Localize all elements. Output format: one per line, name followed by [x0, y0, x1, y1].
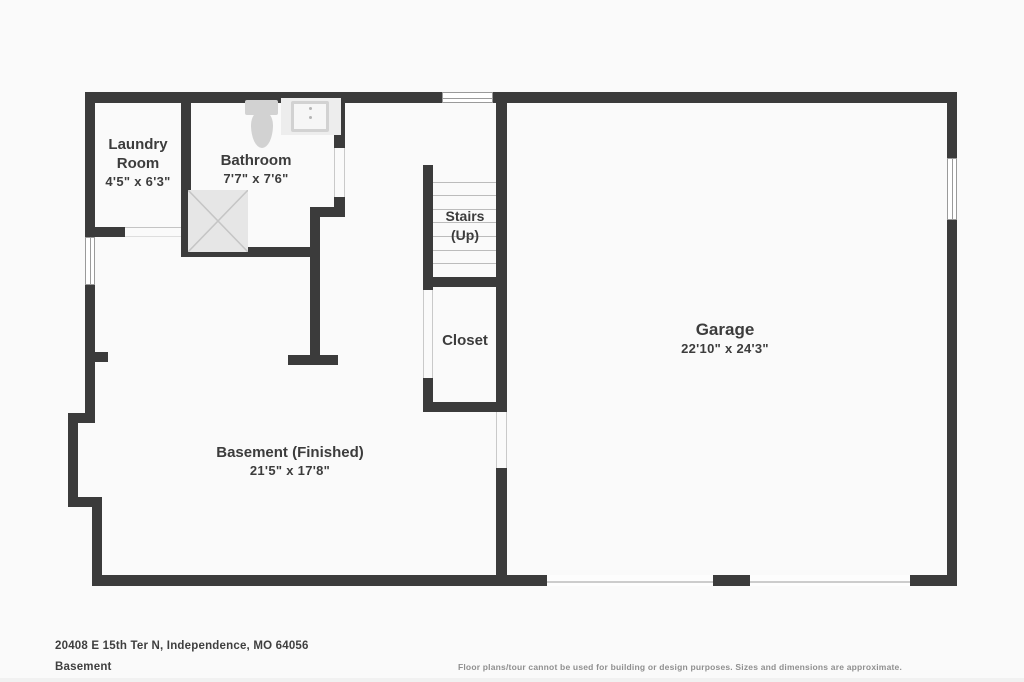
- stairs-direction: (Up): [423, 226, 507, 245]
- room-dims: 4'5" x 6'3": [95, 173, 181, 191]
- wall-partition-endcap: [288, 355, 338, 365]
- wall-closet-left-top: [423, 277, 433, 290]
- room-name: Garage: [640, 319, 810, 340]
- floor-level-label: Basement: [55, 661, 112, 673]
- laundry-door-opening: [125, 227, 181, 237]
- room-name: Basement (Finished): [190, 443, 390, 462]
- stair-tread-line: [433, 195, 496, 196]
- room-basement: Basement (Finished) 21'5" x 17'8": [190, 443, 390, 480]
- wall-basement-partition: [310, 207, 320, 365]
- window-left-symbol: [85, 237, 95, 285]
- window-mullion: [90, 238, 91, 284]
- room-dims: 22'10" x 24'3": [640, 340, 810, 358]
- garage-vehicle-door-1: [547, 575, 713, 586]
- stair-tread-line: [433, 263, 496, 264]
- room-name: Closet: [423, 331, 507, 350]
- sink-faucet-dot: [309, 107, 312, 110]
- garage-door-panel-line: [547, 581, 713, 583]
- wall-closet-bottom: [423, 402, 507, 412]
- room-name: Laundry Room: [95, 135, 181, 173]
- room-dims: 7'7" x 7'6": [196, 170, 316, 188]
- room-dims: 21'5" x 17'8": [190, 462, 390, 480]
- room-name: Stairs: [423, 207, 507, 226]
- room-bathroom: Bathroom 7'7" x 7'6": [196, 151, 316, 188]
- window-top-symbol: [442, 92, 493, 103]
- wall-lower-left: [92, 497, 102, 586]
- room-name: Bathroom: [196, 151, 316, 170]
- room-closet: Closet: [423, 331, 507, 350]
- bathroom-door-opening: [334, 148, 345, 197]
- sink-drain-dot: [309, 116, 312, 119]
- room-garage: Garage 22'10" x 24'3": [640, 319, 810, 358]
- wall-bumpout-left: [68, 413, 78, 507]
- floor-plan: Laundry Room 4'5" x 6'3" Bathroom 7'7" x…: [0, 0, 1024, 682]
- room-laundry: Laundry Room 4'5" x 6'3": [95, 135, 181, 191]
- garage-door-panel-line: [750, 581, 910, 583]
- wall-top: [85, 92, 957, 103]
- window-garage-right-symbol: [947, 158, 957, 220]
- shower-icon: [188, 190, 248, 252]
- property-address: 20408 E 15th Ter N, Independence, MO 640…: [55, 640, 309, 652]
- window-mullion: [952, 159, 953, 219]
- wall-stairs-bottom: [423, 277, 507, 287]
- stair-tread-line: [433, 250, 496, 251]
- stair-tread-line: [433, 182, 496, 183]
- toilet-bowl-icon: [251, 110, 273, 148]
- wall-left-stub: [85, 352, 108, 362]
- room-stairs: Stairs (Up): [423, 207, 507, 245]
- sink-icon: [291, 101, 329, 132]
- garage-vehicle-door-2: [750, 575, 910, 586]
- bottom-strip: [0, 678, 1024, 682]
- window-mullion: [443, 98, 492, 99]
- wall-laundry-bottom: [85, 227, 125, 237]
- disclaimer-text: Floor plans/tour cannot be used for buil…: [340, 662, 1020, 672]
- garage-entry-door-opening: [496, 412, 507, 468]
